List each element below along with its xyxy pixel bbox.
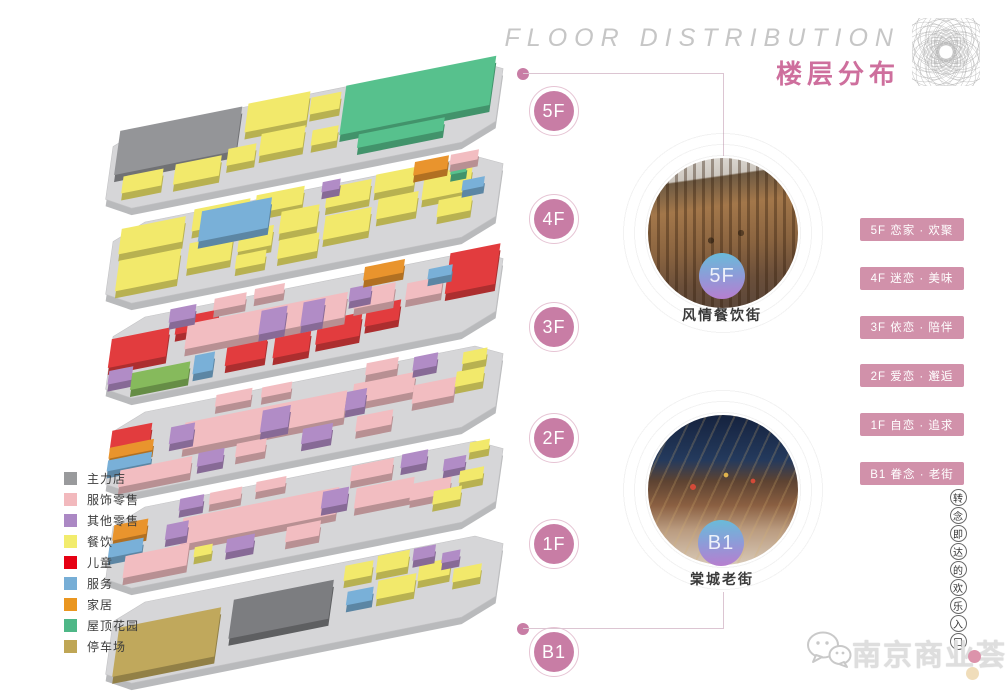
legend-swatch (64, 619, 77, 632)
connector-hline-bottom (523, 628, 724, 629)
wechat-icon (806, 630, 852, 670)
connector-hline-top (523, 73, 724, 74)
floor-slab-b1 (106, 536, 503, 690)
floor-tag-2f: 2F 爱恋 · 邂逅 (860, 364, 964, 387)
legend-label: 其他零售 (87, 512, 139, 529)
legend-label: 停车场 (87, 638, 126, 655)
slogan-vertical: 转念即达的欢乐入口 (949, 489, 967, 651)
floor-tag-3f: 3F 依恋 · 陪伴 (860, 316, 964, 339)
legend-label: 服务 (87, 575, 113, 592)
legend-label: 主力店 (87, 470, 126, 487)
slogan-char: 欢 (950, 579, 967, 596)
floor-marker-label: 2F (534, 418, 574, 458)
legend-swatch (64, 472, 77, 485)
floor-slab-3f (106, 243, 503, 405)
dining-street-label: 风情餐饮街 (622, 305, 822, 325)
floor-slab-4f (106, 149, 503, 310)
legend-swatch (64, 598, 77, 611)
floor-marker-3f: 3F (529, 302, 579, 352)
floor-marker-1f: 1F (529, 519, 579, 569)
legend-item: 家居 (64, 594, 139, 615)
slogan-char: 转 (950, 489, 967, 506)
legend-item: 其他零售 (64, 510, 139, 531)
legend-swatch (64, 514, 77, 527)
floor-slab-5f (106, 56, 503, 215)
floor-stack-diagram (0, 0, 1006, 694)
legend-item: 餐饮 (64, 531, 139, 552)
legend-swatch (64, 535, 77, 548)
legend-swatch (64, 640, 77, 653)
legend-item: 服饰零售 (64, 489, 139, 510)
floor-marker-4f: 4F (529, 194, 579, 244)
legend-label: 服饰零售 (87, 491, 139, 508)
legend-item: 屋顶花园 (64, 615, 139, 636)
floor-slab-1f (106, 439, 503, 596)
old-street-label: 棠城老街 (622, 569, 822, 589)
floor-marker-label: 3F (534, 307, 574, 347)
floor-marker-b1: B1 (529, 627, 579, 677)
watermark-text: 南京商业荟 (852, 632, 1006, 674)
connector-vline-bottom (723, 592, 724, 629)
legend-swatch (64, 577, 77, 590)
legend-swatch (64, 493, 77, 506)
rosette-guilloche-icon (912, 18, 980, 86)
floor-distribution-poster: FLOOR DISTRIBUTION 楼层分布 主力店服饰零售其他零售餐饮儿童服… (0, 0, 1006, 694)
slogan-char: 即 (950, 525, 967, 542)
category-legend: 主力店服饰零售其他零售餐饮儿童服务家居屋顶花园停车场 (64, 468, 139, 657)
floor-marker-label: 1F (534, 524, 574, 564)
floor-badge-5f: 5F (699, 253, 745, 299)
slogan-char: 念 (950, 507, 967, 524)
legend-item: 儿童 (64, 552, 139, 573)
floor-marker-2f: 2F (529, 413, 579, 463)
connector-dot-top (517, 68, 529, 80)
floor-badge-b1: B1 (698, 520, 744, 566)
legend-label: 家居 (87, 596, 113, 613)
floor-marker-label: 4F (534, 199, 574, 239)
watermark-dot-pink (968, 650, 981, 663)
slogan-char: 入 (950, 615, 967, 632)
floor-marker-label: 5F (534, 91, 574, 131)
legend-item: 停车场 (64, 636, 139, 657)
floor-marker-label: B1 (534, 632, 574, 672)
page-title-chinese: 楼层分布 (776, 54, 900, 91)
floor-tag-1f: 1F 自恋 · 追求 (860, 413, 964, 436)
floor-slab-2f (106, 346, 503, 500)
legend-item: 服务 (64, 573, 139, 594)
page-title-english: FLOOR DISTRIBUTION (505, 24, 900, 53)
floor-tag-4f: 4F 迷恋 · 美味 (860, 267, 964, 290)
slogan-char: 达 (950, 543, 967, 560)
floor-tag-5f: 5F 恋家 · 欢聚 (860, 218, 964, 241)
legend-item: 主力店 (64, 468, 139, 489)
slogan-char: 的 (950, 561, 967, 578)
connector-dot-bottom (517, 623, 529, 635)
watermark-dot-cream (966, 667, 979, 680)
legend-label: 餐饮 (87, 533, 113, 550)
floor-tag-b1: B1 眷念 · 老街 (860, 462, 964, 485)
legend-label: 屋顶花园 (87, 617, 139, 634)
legend-label: 儿童 (87, 554, 113, 571)
slogan-char: 乐 (950, 597, 967, 614)
legend-swatch (64, 556, 77, 569)
floor-marker-5f: 5F (529, 86, 579, 136)
